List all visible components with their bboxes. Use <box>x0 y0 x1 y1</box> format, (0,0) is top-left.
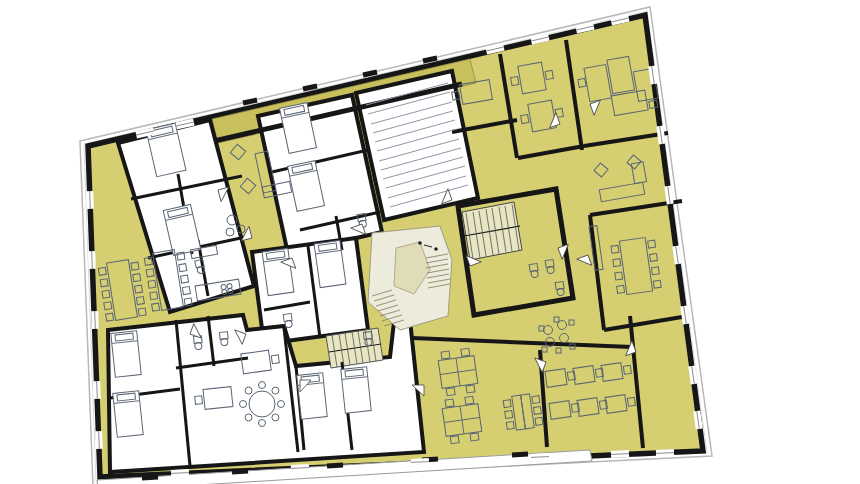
wall-segment <box>303 86 317 89</box>
bed-furniture <box>113 391 143 437</box>
wall-segment <box>142 477 158 478</box>
bed-furniture <box>341 367 371 413</box>
wall-segment <box>232 471 248 472</box>
floor-plan <box>0 0 860 484</box>
bed-furniture <box>111 331 141 377</box>
bed-furniture <box>314 240 346 287</box>
window-glass-line <box>97 381 98 399</box>
wall-segment <box>327 465 343 466</box>
wall-segment <box>512 454 528 455</box>
window-glass-line <box>99 431 100 449</box>
wall-segment <box>243 100 257 103</box>
stair-post-dot <box>434 247 438 251</box>
bed-furniture <box>262 248 294 295</box>
window-glass-line <box>95 311 96 329</box>
wall-segment <box>363 72 377 75</box>
wall-segment <box>423 58 437 61</box>
window-glass-line <box>92 251 93 269</box>
floor-plan-canvas <box>0 0 860 484</box>
window-glass-line <box>90 191 91 209</box>
stair-post-dot <box>418 241 422 245</box>
